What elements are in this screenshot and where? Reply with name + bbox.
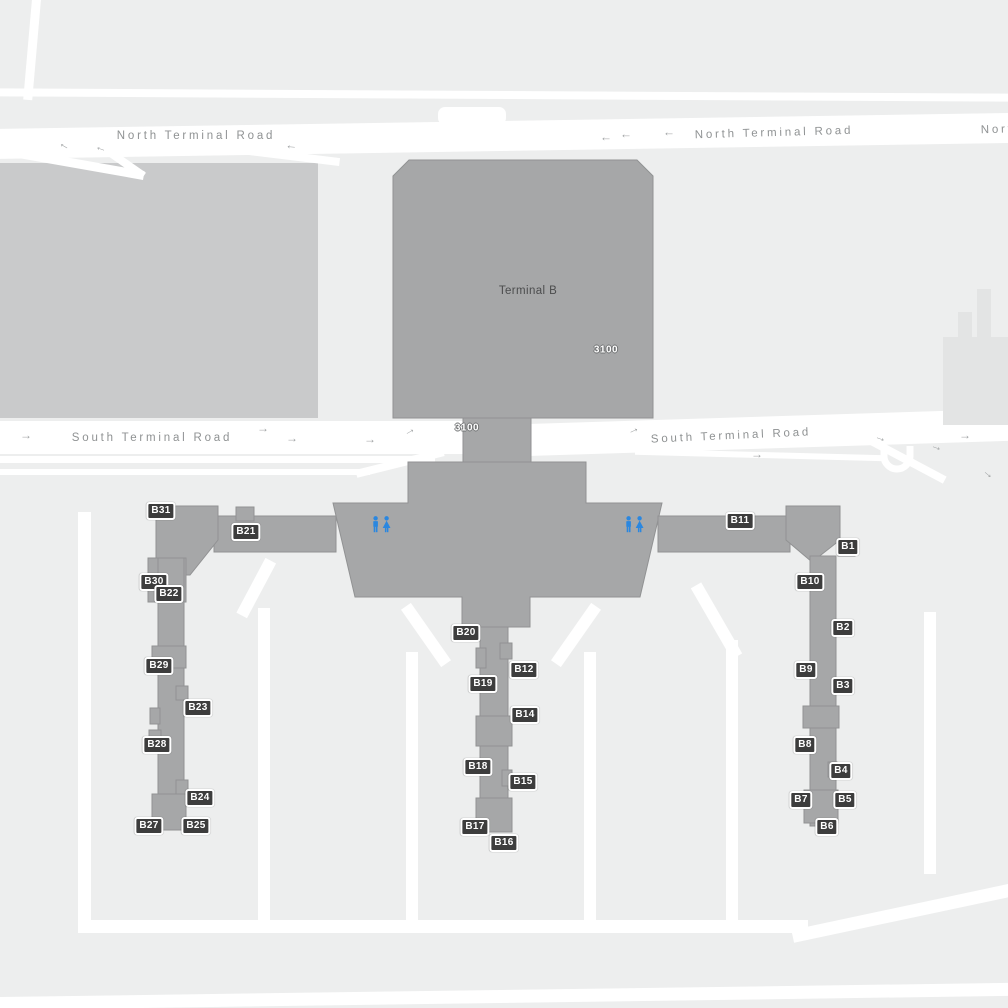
amenities-layer <box>0 0 1008 1008</box>
airport-map: Terminal B 31003100North Terminal RoadNo… <box>0 0 1008 1008</box>
